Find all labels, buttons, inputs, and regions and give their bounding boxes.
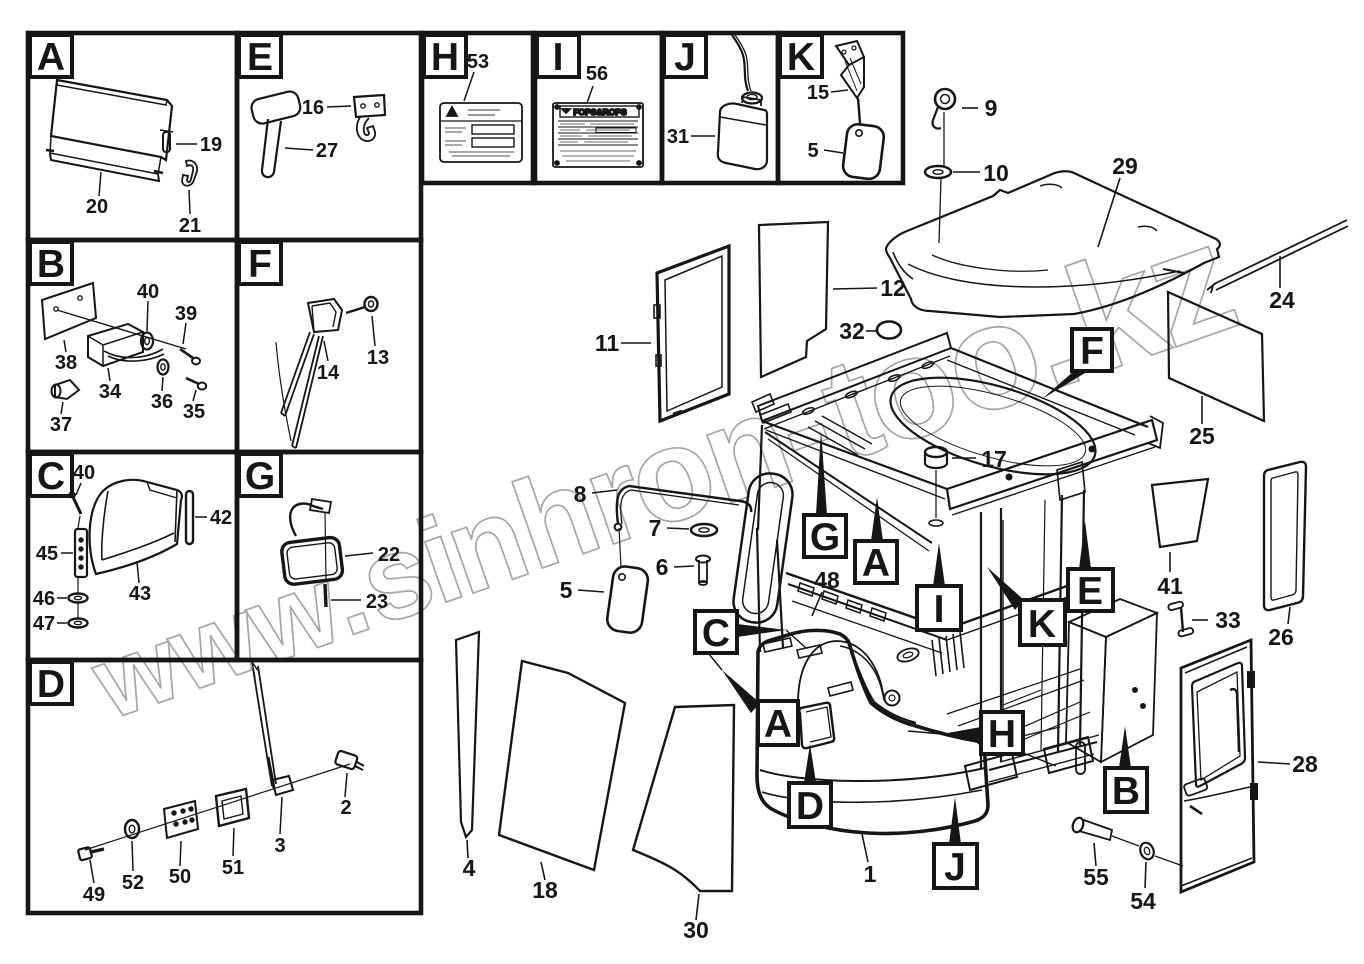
svg-text:35: 35 [183,401,205,423]
svg-text:36: 36 [151,391,173,413]
svg-text:12: 12 [880,275,906,301]
svg-text:55: 55 [1083,864,1109,890]
svg-text:37: 37 [50,414,72,436]
svg-text:K: K [787,36,815,79]
svg-text:52: 52 [122,872,144,894]
svg-text:56: 56 [586,63,608,85]
svg-text:22: 22 [378,544,400,566]
svg-text:23: 23 [366,591,388,613]
svg-text:G: G [245,455,275,498]
svg-text:49: 49 [83,884,105,906]
svg-text:4: 4 [463,855,476,881]
svg-text:F: F [1080,330,1104,373]
svg-text:39: 39 [175,303,197,325]
svg-text:D: D [796,785,824,828]
svg-text:29: 29 [1112,153,1138,179]
svg-text:H: H [988,713,1016,756]
svg-text:H: H [431,36,459,79]
svg-text:3: 3 [274,835,285,857]
svg-text:C: C [37,455,65,498]
svg-text:43: 43 [129,583,151,605]
svg-text:K: K [1028,603,1056,646]
svg-text:20: 20 [86,196,108,218]
svg-text:34: 34 [99,381,122,403]
svg-text:24: 24 [1269,287,1295,313]
svg-text:27: 27 [316,140,338,162]
svg-text:J: J [674,36,696,79]
svg-text:8: 8 [574,481,587,507]
svg-text:21: 21 [179,215,201,237]
svg-text:30: 30 [683,917,709,943]
svg-text:G: G [810,516,840,559]
svg-text:D: D [37,663,65,706]
svg-text:33: 33 [1215,607,1241,633]
svg-text:40: 40 [73,462,95,484]
svg-text:B: B [1112,770,1140,813]
svg-text:10: 10 [983,160,1009,186]
svg-text:40: 40 [137,281,159,303]
svg-text:7: 7 [649,515,662,541]
svg-text:53: 53 [467,51,489,73]
svg-text:32: 32 [839,318,865,344]
svg-text:25: 25 [1189,423,1215,449]
svg-text:F: F [248,243,272,286]
svg-text:J: J [944,846,966,889]
svg-text:A: A [37,36,65,79]
svg-text:42: 42 [210,507,232,529]
svg-text:16: 16 [302,97,324,119]
svg-text:50: 50 [169,866,191,888]
svg-text:45: 45 [36,543,58,565]
svg-text:26: 26 [1268,624,1294,650]
svg-text:E: E [247,36,273,79]
svg-text:15: 15 [807,82,829,104]
svg-text:13: 13 [367,347,389,369]
svg-text:B: B [37,243,65,286]
svg-text:41: 41 [1157,573,1183,599]
svg-text:31: 31 [667,126,689,148]
svg-text:1: 1 [864,861,877,887]
svg-text:51: 51 [222,857,244,879]
svg-text:46: 46 [33,588,55,610]
svg-text:5: 5 [560,577,573,603]
svg-text:C: C [702,612,730,655]
svg-text:I: I [553,36,564,79]
svg-text:A: A [862,542,890,585]
svg-text:5: 5 [807,140,818,162]
svg-text:I: I [934,588,945,631]
svg-text:2: 2 [340,797,351,819]
svg-text:9: 9 [985,95,998,121]
svg-text:47: 47 [33,613,55,635]
svg-text:14: 14 [317,362,340,384]
svg-text:18: 18 [532,877,558,903]
svg-text:17: 17 [981,446,1007,472]
svg-text:6: 6 [656,554,669,580]
svg-text:E: E [1077,570,1103,613]
svg-text:A: A [764,703,792,746]
svg-text:54: 54 [1130,888,1156,914]
svg-text:11: 11 [595,330,620,356]
svg-text:48: 48 [814,567,840,593]
svg-text:FOPS&ROPS: FOPS&ROPS [573,107,627,117]
svg-text:19: 19 [200,134,222,156]
svg-text:38: 38 [55,352,77,374]
svg-text:28: 28 [1292,751,1318,777]
